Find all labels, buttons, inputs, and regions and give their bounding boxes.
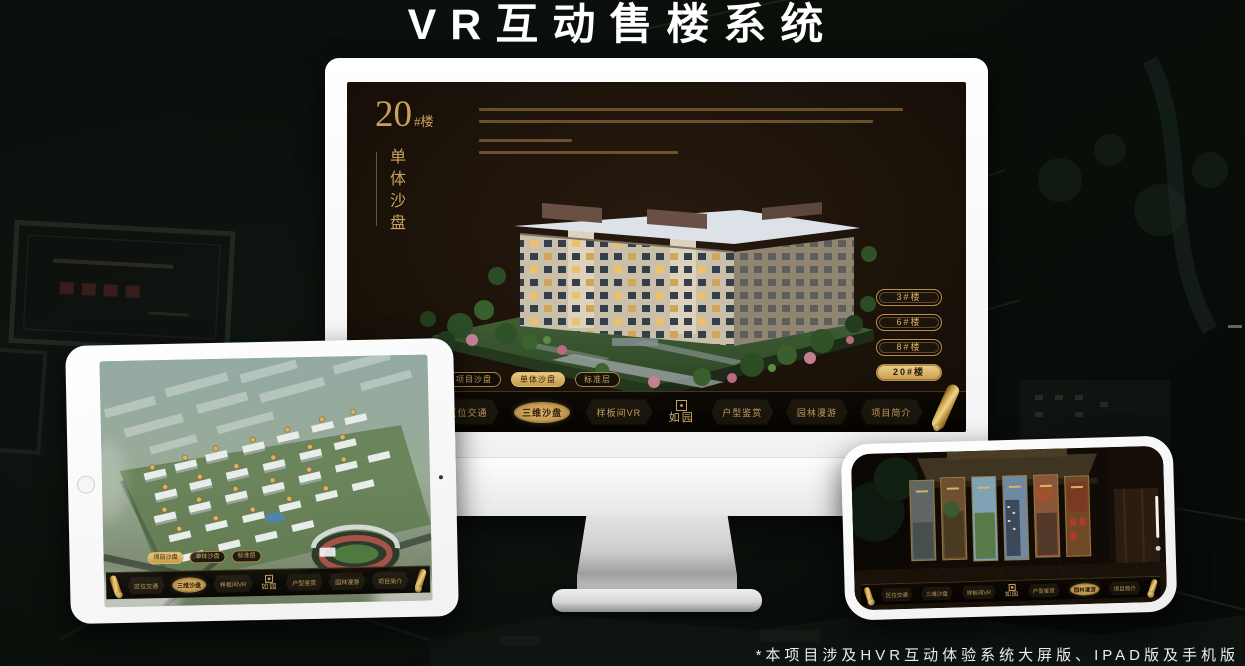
- monitor-subtabs: 项目沙盘 单体沙盘 标准层: [447, 372, 620, 387]
- seal-icon: [265, 575, 273, 583]
- subtab-standard-floor[interactable]: 标准层: [575, 372, 620, 387]
- nav-item-floorplans[interactable]: 户型鉴赏: [715, 403, 769, 422]
- nav-item-location[interactable]: 区位交通: [130, 579, 162, 593]
- description-text-block: [479, 108, 903, 163]
- floor-button-8[interactable]: 8#楼: [876, 339, 942, 356]
- home-button[interactable]: [77, 475, 95, 493]
- description-line: [479, 120, 873, 123]
- scroll-right-icon[interactable]: [930, 382, 961, 431]
- brand-logo-text: 如园: [1005, 592, 1019, 598]
- brand-logo-text: 如园: [669, 413, 695, 424]
- subtab-project-sandbox[interactable]: 项目沙盘: [447, 372, 501, 387]
- tablet-device: 项目沙盘 单体沙盘 标准层 区位交通 三维沙盘 样板间VR 如园 户型鉴赏 园林…: [65, 338, 459, 624]
- scroll-left-icon[interactable]: [109, 575, 123, 598]
- seal-icon: [1008, 584, 1015, 591]
- camera-icon: [439, 475, 443, 479]
- brand-logo[interactable]: 如园: [669, 400, 695, 424]
- nav-item-3d-sandbox[interactable]: 三维沙盘: [515, 403, 569, 422]
- scroll-right-icon[interactable]: [414, 568, 427, 591]
- description-line: [479, 151, 678, 154]
- block-number: 20: [375, 94, 412, 135]
- subtab-single-sandbox[interactable]: 单体沙盘: [511, 372, 565, 387]
- phone-device: 区位交通 三维沙盘 样板间VR 如园 户型鉴赏 园林漫游 项目简介: [841, 435, 1178, 620]
- subtab-project-sandbox[interactable]: 项目沙盘: [147, 552, 183, 565]
- phone-screen: 区位交通 三维沙盘 样板间VR 如园 户型鉴赏 园林漫游 项目简介: [851, 446, 1167, 611]
- nav-item-project-intro[interactable]: 项目简介: [374, 574, 406, 588]
- brand-logo-text: 如园: [261, 584, 277, 591]
- tablet-screen: 项目沙盘 单体沙盘 标准层 区位交通 三维沙盘 样板间VR 如园 户型鉴赏 园林…: [99, 355, 432, 608]
- description-line: [479, 139, 572, 142]
- scroll-left-icon[interactable]: [863, 586, 874, 604]
- nav-item-showroom-vr[interactable]: 样板间VR: [964, 586, 994, 597]
- nav-item-location[interactable]: 区位交通: [883, 589, 911, 600]
- poster-stage: VR互动售楼系统: [0, 0, 1245, 666]
- area-tag: [319, 547, 335, 556]
- nav-item-3d-sandbox[interactable]: 三维沙盘: [173, 578, 205, 592]
- floor-button-6[interactable]: 6#楼: [876, 314, 942, 331]
- floor-button-group: 3#楼 6#楼 8#楼 20#楼: [876, 289, 942, 381]
- description-line: [479, 108, 903, 111]
- page-title: VR互动售楼系统: [0, 1, 1245, 50]
- footnote: *本项目涉及HVR互动体验系统大屏版、IPAD版及手机版: [756, 644, 1239, 665]
- scroll-right-icon[interactable]: [1147, 578, 1158, 596]
- subtab-standard-floor[interactable]: 标准层: [231, 550, 261, 563]
- nav-item-showroom-vr[interactable]: 样板间VR: [590, 403, 649, 422]
- floor-button-3[interactable]: 3#楼: [876, 289, 942, 306]
- nav-item-garden-tour[interactable]: 园林漫游: [790, 403, 844, 422]
- nav-item-floorplans[interactable]: 户型鉴赏: [288, 575, 320, 589]
- subtab-single-sandbox[interactable]: 单体沙盘: [189, 551, 225, 564]
- block-label: 20#楼: [375, 96, 434, 133]
- brand-logo[interactable]: 如园: [1005, 584, 1019, 598]
- nav-item-garden-tour[interactable]: 园林漫游: [331, 574, 363, 588]
- nav-item-floorplans[interactable]: 户型鉴赏: [1030, 585, 1058, 596]
- block-suffix: #楼: [414, 114, 434, 129]
- block-subtitle: 单体沙盘: [383, 148, 407, 236]
- nav-item-garden-tour[interactable]: 园林漫游: [1070, 583, 1098, 594]
- monitor-stand-base: [552, 589, 762, 612]
- nav-item-3d-sandbox[interactable]: 三维沙盘: [923, 588, 951, 599]
- brand-logo[interactable]: 如园: [261, 575, 277, 591]
- tablet-subtabs: 项目沙盘 单体沙盘 标准层: [147, 550, 261, 564]
- nav-item-project-intro[interactable]: 项目简介: [864, 403, 918, 422]
- monitor-stand-neck: [577, 515, 737, 593]
- nav-item-project-intro[interactable]: 项目简介: [1111, 582, 1139, 593]
- nav-item-showroom-vr[interactable]: 样板间VR: [216, 577, 251, 591]
- seal-icon: [676, 400, 687, 411]
- floor-button-20[interactable]: 20#楼: [876, 364, 942, 381]
